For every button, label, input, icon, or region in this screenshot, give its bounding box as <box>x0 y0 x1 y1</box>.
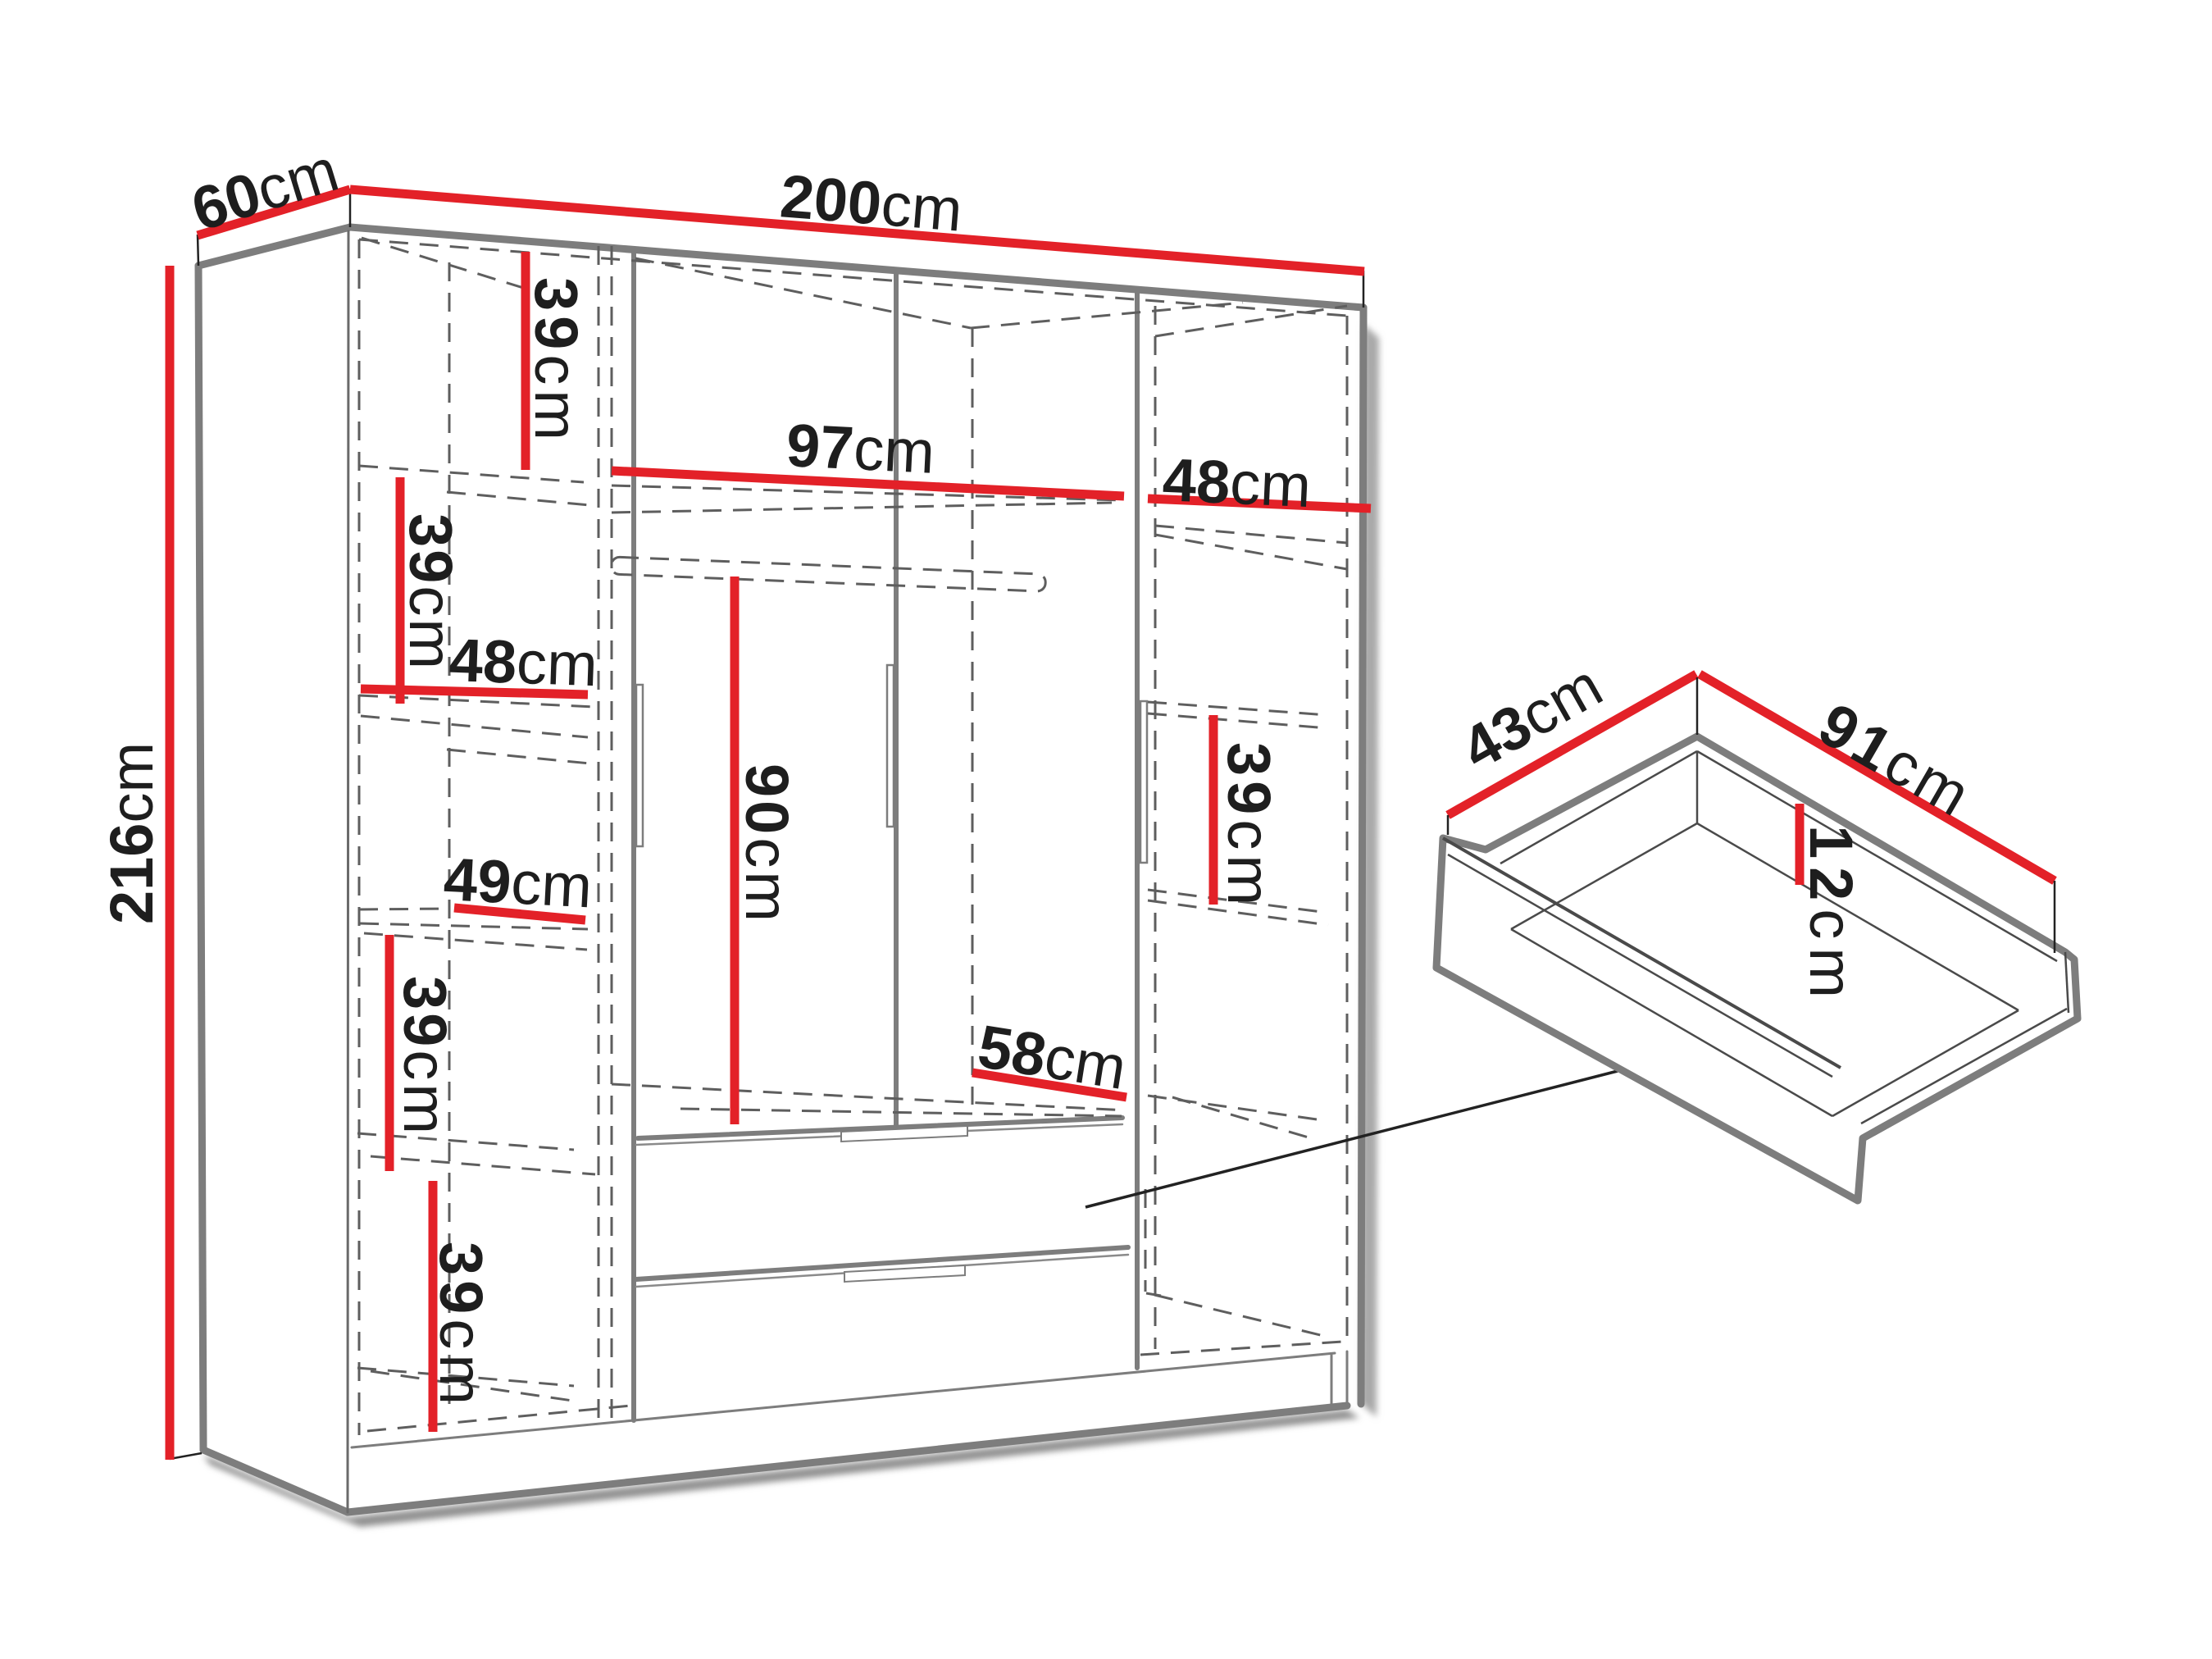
svg-text:97cm: 97cm <box>785 411 936 486</box>
svg-text:49cm: 49cm <box>442 845 594 920</box>
svg-text:39cm: 39cm <box>391 976 459 1137</box>
svg-text:39cm: 39cm <box>1215 742 1283 910</box>
svg-text:48cm: 48cm <box>448 626 599 699</box>
svg-text:60cm: 60cm <box>184 135 345 244</box>
svg-text:216cm: 216cm <box>98 742 166 924</box>
svg-text:48cm: 48cm <box>1161 445 1313 520</box>
svg-text:200cm: 200cm <box>778 162 965 244</box>
svg-text:39cm: 39cm <box>427 1242 495 1410</box>
svg-text:39cm: 39cm <box>522 277 590 445</box>
svg-text:12cm: 12cm <box>1797 825 1865 1006</box>
svg-text:91cm: 91cm <box>1808 690 1985 831</box>
svg-text:58cm: 58cm <box>973 1012 1131 1102</box>
svg-text:90cm: 90cm <box>733 763 801 925</box>
